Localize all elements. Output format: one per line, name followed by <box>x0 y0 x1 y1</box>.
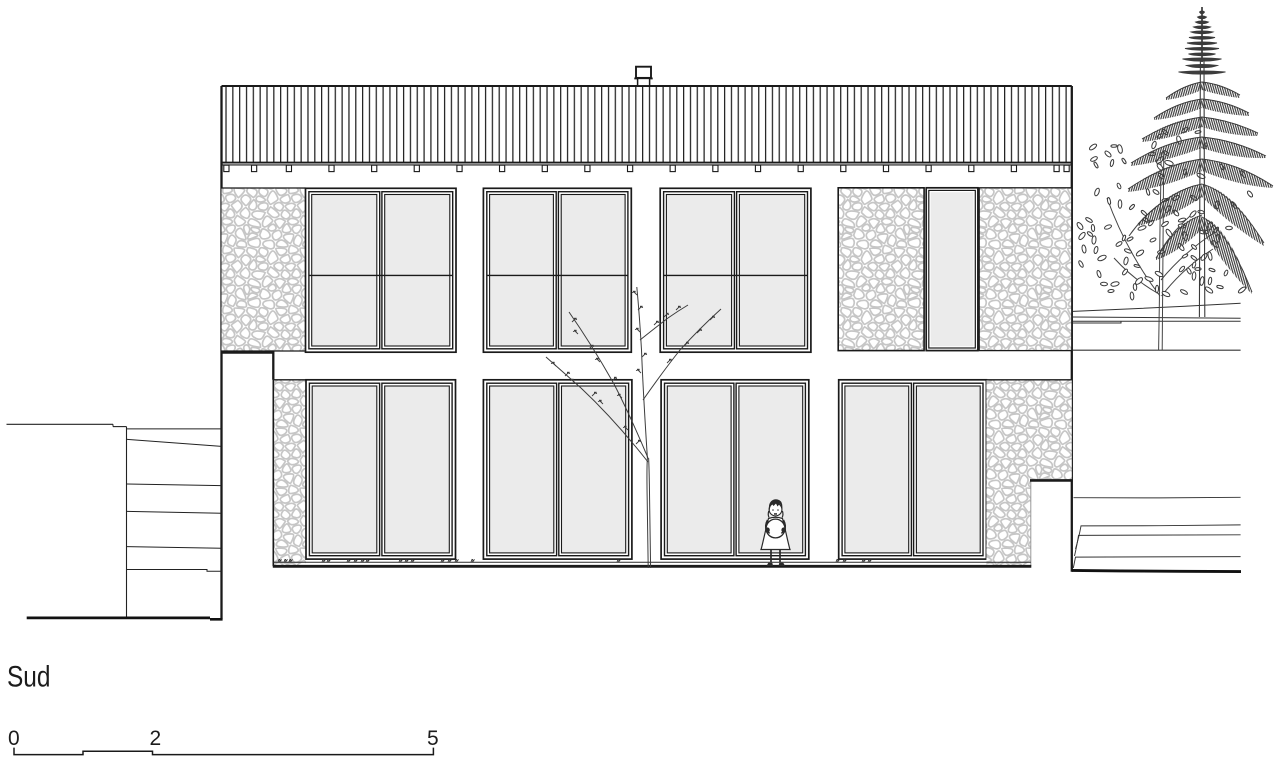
svg-text:Sud: Sud <box>7 661 51 694</box>
svg-text:0: 0 <box>8 727 20 750</box>
svg-text:5: 5 <box>427 727 439 750</box>
svg-text:2: 2 <box>150 727 162 750</box>
